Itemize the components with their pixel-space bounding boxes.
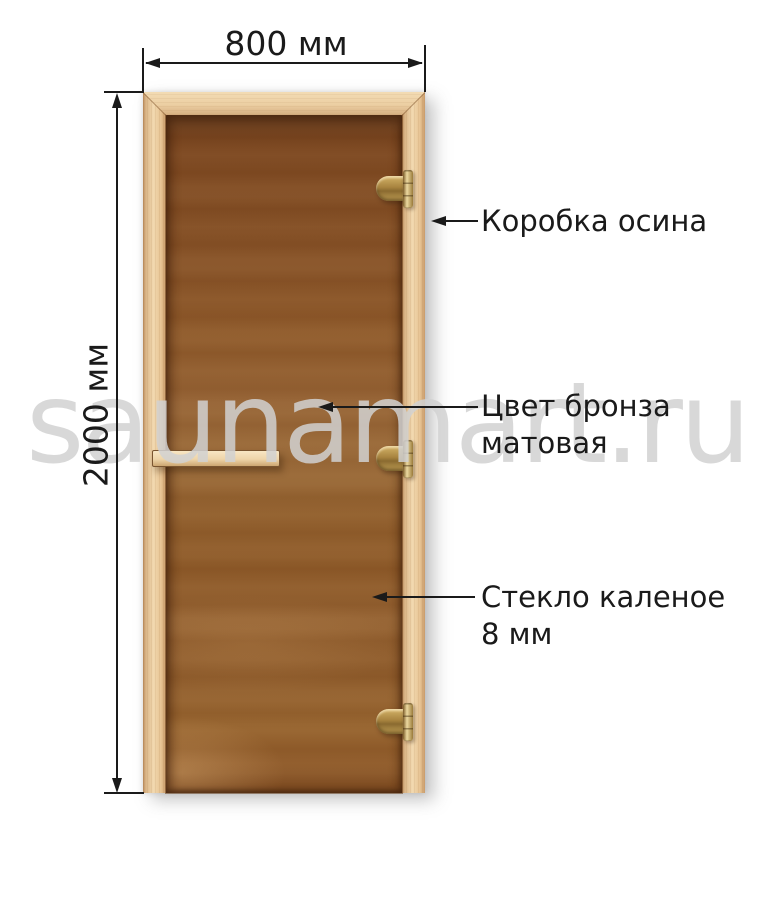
hinge-knuckle bbox=[403, 703, 413, 741]
extension-tick bbox=[104, 792, 144, 794]
callout-glass-color-label: Цвет бронза матовая bbox=[481, 388, 671, 462]
hinge-flag bbox=[376, 446, 404, 471]
height-label: 2000 мм bbox=[77, 343, 116, 487]
arrow-left-icon bbox=[431, 216, 446, 226]
callout-line1: Цвет бронза bbox=[481, 388, 671, 425]
callout-line bbox=[386, 596, 475, 598]
sauna-door bbox=[143, 92, 425, 793]
callout-line bbox=[332, 406, 478, 408]
callout-frame-label: Коробка осина bbox=[481, 203, 707, 240]
arrow-left-icon bbox=[318, 402, 333, 412]
arrow-down-icon bbox=[112, 778, 122, 793]
top-hinge bbox=[376, 170, 414, 208]
door-handle bbox=[152, 450, 280, 467]
bottom-hinge bbox=[376, 703, 414, 741]
arrow-left-icon bbox=[372, 592, 387, 602]
callout-line2: матовая bbox=[481, 425, 671, 462]
callout-line2: 8 мм bbox=[481, 616, 725, 653]
dimension-line bbox=[116, 96, 118, 790]
product-diagram: saunamart.ru 800 мм 2000 мм Коробка осин… bbox=[0, 0, 762, 900]
callout-line1: Стекло каленое bbox=[481, 579, 725, 616]
callout-glass-type-label: Стекло каленое 8 мм bbox=[481, 579, 725, 653]
width-label: 800 мм bbox=[145, 24, 427, 63]
door-frame-left bbox=[143, 92, 166, 793]
extension-tick bbox=[142, 48, 144, 92]
hinge-knuckle bbox=[403, 440, 413, 478]
hinge-flag bbox=[376, 709, 404, 734]
extension-tick bbox=[104, 91, 144, 93]
hinge-flag bbox=[376, 176, 404, 201]
callout-line bbox=[445, 220, 478, 222]
middle-hinge bbox=[376, 440, 414, 478]
arrow-up-icon bbox=[112, 93, 122, 108]
hinge-knuckle bbox=[403, 170, 413, 208]
door-frame-top bbox=[143, 92, 425, 115]
